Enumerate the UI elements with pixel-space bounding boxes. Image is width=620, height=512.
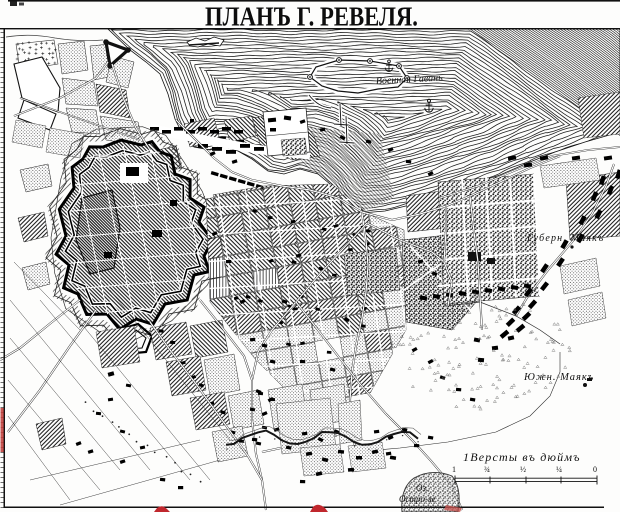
svg-text:¼: ¼ bbox=[556, 465, 562, 474]
svg-text:¾: ¾ bbox=[484, 465, 490, 474]
svg-text:Оз.: Оз. bbox=[416, 483, 428, 493]
svg-text:½: ½ bbox=[520, 465, 526, 474]
svg-text:1Версты въ дюймъ: 1Версты въ дюймъ bbox=[463, 450, 581, 464]
svg-text:Остро-зе: Остро-зе bbox=[399, 494, 436, 504]
svg-text:ПЛАНЪ Г. РЕВЕЛЯ.: ПЛАНЪ Г. РЕВЕЛЯ. bbox=[205, 2, 418, 32]
svg-text:Губерн. Маякъ: Губерн. Маякъ bbox=[526, 233, 604, 244]
svg-text:Южн. Маякъ: Южн. Маякъ bbox=[523, 372, 594, 383]
svg-text:0: 0 bbox=[593, 465, 597, 474]
svg-text:1: 1 bbox=[452, 465, 456, 474]
